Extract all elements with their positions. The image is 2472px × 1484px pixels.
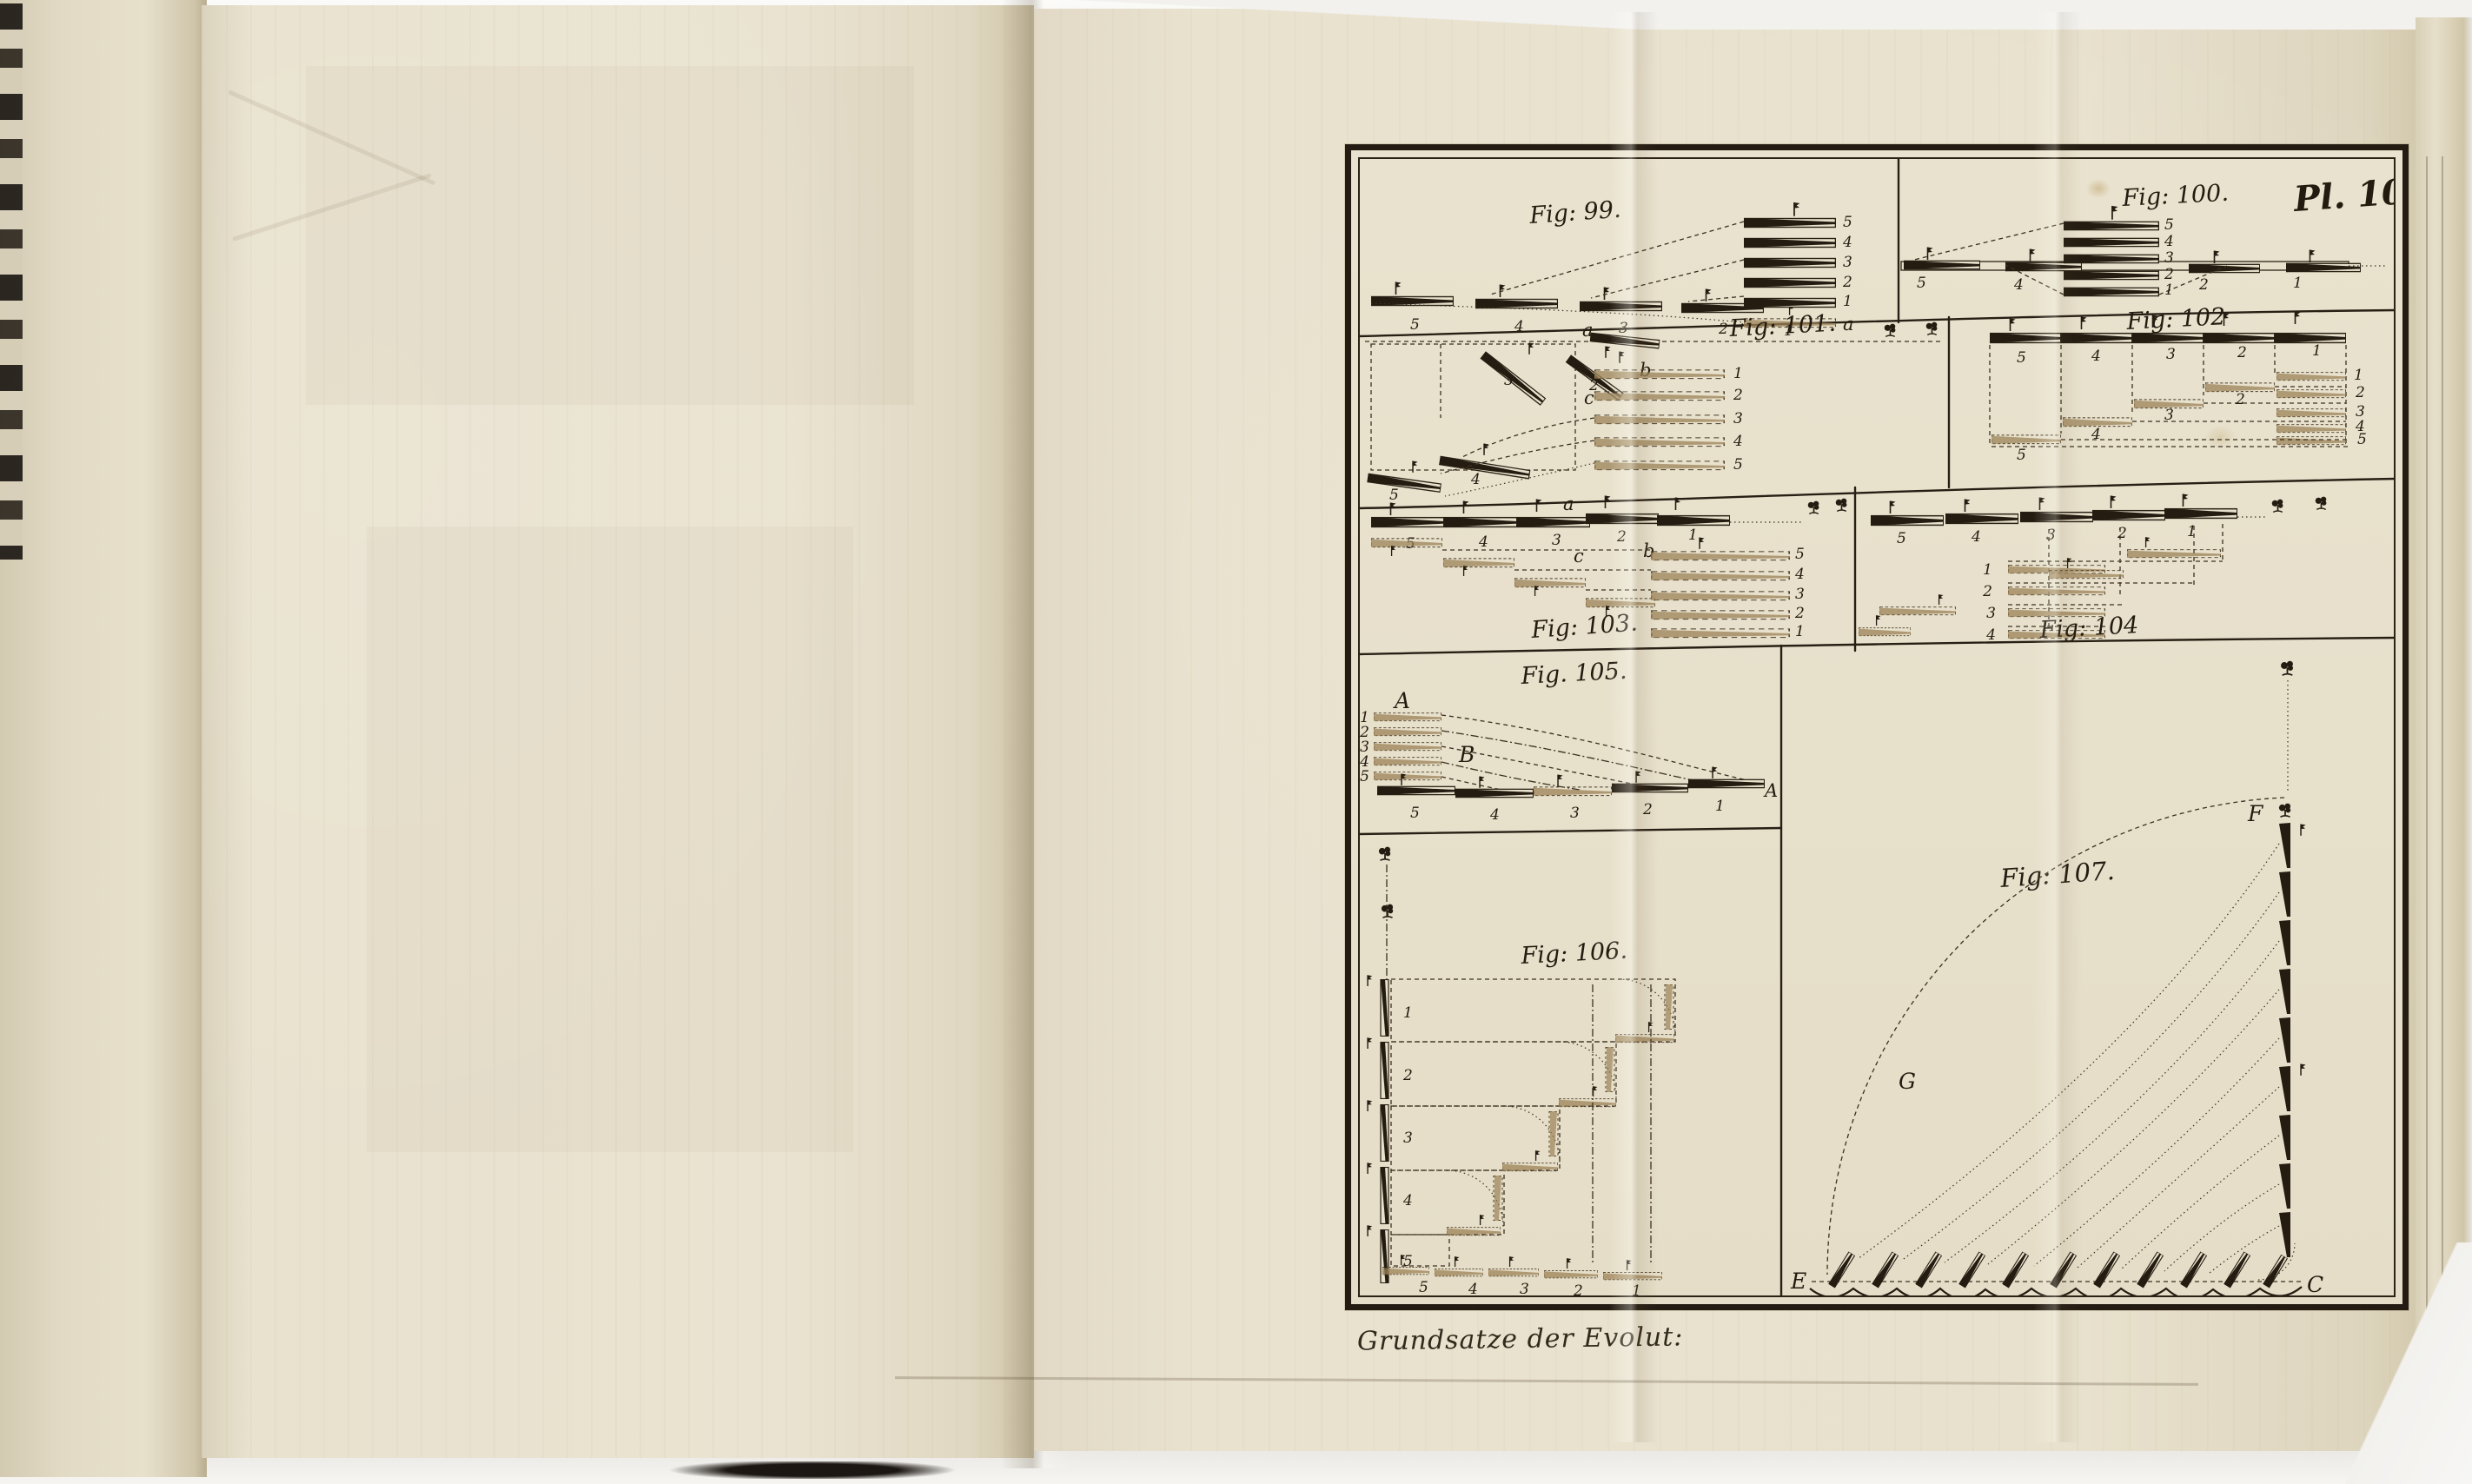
rank-number: 2 <box>2355 384 2365 401</box>
flag-icon <box>1558 775 1563 786</box>
battalion-bar-ghost <box>1651 552 1790 560</box>
page-edge-line <box>2426 156 2428 1355</box>
battalion-bar-ghost <box>1651 611 1790 619</box>
rank-number: 5 <box>2017 447 2026 464</box>
rank-number: 3 <box>1520 1281 1529 1297</box>
battalion-bar <box>1455 789 1534 798</box>
flag-icon <box>1464 501 1469 514</box>
tree-icon <box>2316 497 2327 510</box>
battalion-bar <box>1371 517 1444 527</box>
battalion-bar-vertical <box>1381 1229 1388 1283</box>
flag-icon <box>2301 825 2306 836</box>
flag-icon <box>1413 461 1418 473</box>
left-page-stack <box>0 0 207 1477</box>
battalion-bar-ghost <box>1651 572 1790 580</box>
battalion-bar <box>1371 296 1454 306</box>
flag-icon <box>1455 1256 1460 1267</box>
rank-number: 2 <box>1842 274 1852 291</box>
rank-number: 1 <box>1715 798 1725 815</box>
battalion-bar <box>1904 261 1980 269</box>
tree-icon <box>1836 499 1847 512</box>
flag-icon <box>2184 494 2189 507</box>
rank-number: 1 <box>2312 342 2322 360</box>
point-label-C: C <box>2307 1272 2323 1297</box>
battalion-bar-tilted <box>1872 1252 1899 1289</box>
wheel-outline <box>1391 1235 1449 1266</box>
battalion-bar <box>2275 333 2346 343</box>
battalion-bar-vertical <box>1381 1167 1388 1224</box>
battalion-bar <box>1444 517 1517 527</box>
battalion-bar <box>1744 298 1836 308</box>
flag-icon <box>1700 538 1705 549</box>
book-fore-edge <box>0 3 23 560</box>
point-label-A2: A <box>1763 780 1778 801</box>
rank-number: 3 <box>2164 407 2174 424</box>
battalion-bar-vertical <box>2279 1017 2290 1063</box>
rank-number: 4 <box>1733 433 1743 450</box>
rank-number: 4 <box>1470 471 1481 488</box>
table-surface-top <box>521 0 2472 30</box>
point-label-F: F <box>2247 801 2264 826</box>
flag-icon <box>1567 1258 1572 1269</box>
rank-number: 2 <box>2235 391 2245 408</box>
rank-number: 2 <box>1718 321 1728 338</box>
flag-icon <box>2111 496 2117 509</box>
battalion-bar-ghost <box>1651 592 1790 600</box>
rank-number: 5 <box>1419 1279 1428 1296</box>
rank-number: 4 <box>1794 566 1805 583</box>
rank-number: 5 <box>1410 316 1420 334</box>
photo-of-open-book: Fig: 99. 5 4 3 2 1 5 <box>0 0 2472 1484</box>
flag-icon <box>1594 1086 1598 1096</box>
fig99-label: Fig: 99. <box>1528 196 1621 229</box>
point-label-B: B <box>1458 742 1475 767</box>
battalion-bar-ghost <box>2276 437 2346 445</box>
battalion-bar-tilted <box>1367 474 1441 493</box>
flag-icon <box>1391 503 1396 516</box>
figure-100: Fig: 100. Pl. 10. 5 4 2 1 5 <box>1901 170 2396 299</box>
rank-number: 5 <box>1897 530 1906 547</box>
battalion-bar-ghost <box>2276 373 2346 381</box>
tree-icon <box>2279 804 2290 818</box>
wheel-outline <box>1391 1042 1616 1106</box>
flag-icon <box>1481 1215 1485 1225</box>
rank-number: 5 <box>1733 456 1743 474</box>
guide-line <box>1462 418 1594 457</box>
battalion-bar-vertical <box>2279 1066 2290 1111</box>
flag-icon <box>2112 206 2118 220</box>
fan-line <box>2121 1136 2279 1269</box>
rank-number: 2 <box>1573 1282 1583 1297</box>
rank-number: 3 <box>1733 410 1743 427</box>
flag-icon <box>1965 500 1971 513</box>
figure-105: Fig. 105. A 1 2 3 4 5 B <box>1359 658 1778 824</box>
rank-number: 5 <box>2017 349 2026 367</box>
battalion-bar-ghost <box>2127 550 2221 558</box>
tree-icon <box>1379 847 1390 861</box>
battalion-bar <box>2286 263 2361 272</box>
flag-icon <box>1368 975 1372 986</box>
battalion-bar-tilted <box>2180 1252 2207 1289</box>
battalion-bar-ghost <box>1488 1269 1539 1276</box>
fig100-label: Fig: 100. <box>2121 180 2230 212</box>
tree-icon <box>1885 324 1896 337</box>
flag-icon <box>2011 319 2016 332</box>
page-fold-crease <box>2033 12 2082 1442</box>
flag-icon <box>1928 248 1933 261</box>
rank-number: 5 <box>1360 768 1369 785</box>
flag-icon <box>1794 202 1800 216</box>
row-divider <box>1358 828 1781 834</box>
point-label-c: c <box>1584 388 1594 408</box>
battalion-bar-tilted <box>2002 1252 2029 1289</box>
battalion-bar-ghost <box>1549 1111 1558 1156</box>
tree-icon <box>1926 322 1938 335</box>
battalion-bar-ghost <box>1374 743 1441 751</box>
battalion-bar-ghost <box>1544 1271 1598 1278</box>
wheel-outline <box>1391 1106 1560 1170</box>
rank-number: 1 <box>1688 527 1698 544</box>
show-through-block <box>367 527 853 1152</box>
fan-line <box>2164 1184 2279 1271</box>
battalion-bar-ghost <box>1514 579 1586 587</box>
battalion-bar <box>1871 515 1944 526</box>
rank-number: 1 <box>2354 367 2363 384</box>
rank-number: 1 <box>1983 561 1992 579</box>
battalion-bar <box>1517 517 1590 527</box>
battalion-bar-vertical <box>1381 1104 1388 1162</box>
rank-number: 3 <box>1570 805 1580 822</box>
battalion-bar-ghost <box>2276 409 2346 417</box>
row-divider <box>1358 638 2396 654</box>
battalion-bar-vertical <box>2279 1212 2290 1257</box>
battalion-bar-vertical <box>1381 979 1388 1037</box>
guide-line <box>1688 296 1744 301</box>
tree-icon <box>2272 500 2283 513</box>
battalion-bar-tilted <box>1828 1252 1855 1289</box>
battalion-bar-ghost <box>2276 390 2346 398</box>
battalion-bar-vertical <box>2279 969 2290 1014</box>
battalion-bar <box>1945 513 2018 524</box>
flag-icon <box>2146 537 2151 547</box>
battalion-bar-ghost <box>1374 758 1441 765</box>
rank-number: 2 <box>2237 344 2247 361</box>
point-label-E: E <box>1790 1269 1806 1294</box>
rank-number: 3 <box>1843 254 1852 271</box>
battalion-bar <box>1744 218 1836 228</box>
blank-left-page <box>202 5 1034 1458</box>
battalion-bar-ghost <box>2276 425 2346 433</box>
battalion-bar-ghost <box>1374 713 1441 721</box>
fan-line <box>1988 990 2279 1264</box>
flag-icon <box>1537 500 1542 513</box>
rank-number: 5 <box>2357 431 2367 448</box>
battalion-bar <box>1744 278 1836 288</box>
rank-number: 4 <box>1514 318 1524 335</box>
point-label-a: a <box>1843 314 1854 335</box>
fan-line <box>2210 1226 2279 1273</box>
battalion-bar-vertical <box>2279 1163 2290 1209</box>
battalion-bar-tilted <box>2093 1252 2120 1289</box>
rank-number: 2 <box>2198 276 2209 294</box>
flag-icon <box>1891 501 1896 514</box>
battalion-bar <box>1377 786 1455 795</box>
page-edge-line <box>2442 156 2443 1355</box>
rank-number: 1 <box>1795 623 1805 640</box>
rank-number: 5 <box>1389 487 1399 504</box>
flag-icon <box>2082 317 2087 330</box>
rank-number: 4 <box>1402 1192 1413 1209</box>
battalion-bar <box>2132 333 2204 343</box>
flag-icon <box>2296 312 2301 325</box>
battalion-bar <box>2189 264 2260 273</box>
battalion-bar <box>1688 779 1765 788</box>
battalion-bar-tilted <box>1915 1252 1942 1289</box>
rank-number: 2 <box>2164 266 2174 283</box>
battalion-bar <box>1475 299 1558 308</box>
flag-icon <box>2301 1064 2306 1076</box>
battalion-bar-ghost <box>1665 984 1673 1030</box>
battalion-bar <box>1744 258 1836 268</box>
rank-number: 3 <box>1795 586 1805 603</box>
point-label-G: G <box>1899 1069 1916 1094</box>
engraved-plate: Fig: 99. 5 4 3 2 1 5 <box>1345 144 2409 1310</box>
battalion-bar <box>2204 333 2275 343</box>
flag-icon <box>1396 282 1402 295</box>
battalion-bar-ghost <box>1374 728 1441 736</box>
flag-icon <box>2310 250 2316 263</box>
rank-number: 4 <box>2013 276 2024 294</box>
show-through-stroke <box>228 89 436 185</box>
battalion-bar-ghost <box>1651 629 1790 638</box>
rank-number: 3 <box>2164 249 2174 267</box>
rank-number: 5 <box>1917 275 1926 292</box>
battalion-bar-tilted <box>2263 1255 2288 1289</box>
battalion-bar <box>2164 508 2237 519</box>
rank-number: 4 <box>1489 806 1500 824</box>
guide-line <box>1441 715 1751 781</box>
battalion-bar-ghost <box>1859 628 1911 636</box>
rank-number: 2 <box>1794 605 1805 622</box>
flag-icon <box>1368 1225 1372 1236</box>
fig101-label: Fig: 101. <box>1728 310 1837 342</box>
rank-number: 5 <box>2164 216 2174 234</box>
point-label-c: c <box>1574 546 1584 566</box>
table-surface-corner <box>2346 1242 2472 1484</box>
rank-number: 3 <box>1986 605 1996 622</box>
book-block-dark-edge <box>669 1461 956 1479</box>
fan-line <box>1945 941 2279 1262</box>
rank-number: 5 <box>1795 546 1805 563</box>
fig102-label: Fig: 102 <box>2125 303 2226 335</box>
flag-icon <box>1536 1150 1541 1161</box>
tree-icon <box>1808 501 1819 514</box>
flag-icon <box>1939 594 1944 605</box>
rank-number: 2 <box>1733 387 1743 404</box>
battalion-bar-vertical <box>2279 823 2290 868</box>
plate-number: Pl. 10. <box>2291 170 2396 220</box>
rank-number: 4 <box>1842 234 1852 251</box>
battalion-bar-vertical <box>1381 1042 1388 1099</box>
point-label-A: A <box>1393 688 1410 713</box>
battalion-bar-ghost <box>1374 772 1441 780</box>
battalion-bar-tilted <box>2137 1252 2164 1289</box>
show-through-stroke <box>232 173 432 242</box>
battalion-bar-ghost <box>1435 1269 1483 1276</box>
battalion-bar-vertical <box>2279 920 2290 965</box>
battalion-bar <box>1744 238 1836 248</box>
rank-number: 1 <box>1733 365 1743 382</box>
rank-number: 2 <box>1402 1067 1413 1084</box>
rank-number: 1 <box>2187 523 2197 540</box>
battalion-bar <box>1657 515 1730 526</box>
battalion-bar-tilted <box>2223 1252 2250 1289</box>
rank-number: 5 <box>1843 214 1852 231</box>
rank-number: 3 <box>1403 1130 1413 1147</box>
fan-line <box>2078 1087 2279 1268</box>
rank-number: 4 <box>1478 533 1488 551</box>
rank-number: 4 <box>1971 528 1981 546</box>
flag-icon <box>1510 1256 1514 1267</box>
battalion-bar <box>2092 510 2165 520</box>
flag-icon <box>1368 1163 1372 1174</box>
figure-104: 5 4 3 2 1 1 2 3 4 Fig: 104 <box>1859 494 2326 645</box>
flag-icon <box>1877 615 1881 626</box>
rank-number: 3 <box>1504 372 1514 389</box>
battalion-bar-vertical <box>2279 1115 2290 1160</box>
rank-number: 1 <box>2164 282 2174 299</box>
rank-number: 1 <box>1403 1004 1413 1022</box>
formation-outline <box>1371 344 1575 470</box>
plate-figures-svg: Fig: 99. 5 4 3 2 1 5 <box>1358 157 2396 1297</box>
show-through-block <box>306 66 914 405</box>
battalion-bar-ghost <box>1879 607 1956 615</box>
rank-number: 4 <box>2091 426 2101 443</box>
flag-icon <box>1529 343 1534 354</box>
tree-icon <box>2281 661 2293 675</box>
rank-number: 1 <box>2293 275 2303 292</box>
flag-icon <box>1368 1037 1372 1049</box>
battalion-bar-ghost <box>1443 559 1514 567</box>
rank-number: 4 <box>1985 626 1996 644</box>
battalion-bar-tilted <box>1439 456 1530 480</box>
rank-number: 3 <box>1552 532 1561 549</box>
rank-number: 2 <box>1982 583 1992 600</box>
row-divider <box>1358 479 2396 508</box>
flag-icon <box>1368 1100 1372 1111</box>
page-fold-crease <box>1609 12 1658 1442</box>
battalion-bar-tilted <box>1958 1252 1985 1289</box>
battalion-bar-ghost <box>1494 1176 1502 1221</box>
rank-number: 2 <box>2117 525 2127 542</box>
rank-number: 4 <box>2164 233 2174 250</box>
rank-number: 4 <box>1468 1281 1478 1297</box>
battalion-bar-vertical <box>2279 871 2290 917</box>
page-block-right-edge <box>2416 17 2472 1442</box>
rank-number: 4 <box>2091 348 2101 365</box>
point-label-a: a <box>1563 494 1574 514</box>
rank-number: 5 <box>1410 805 1420 822</box>
rank-number: 1 <box>1843 293 1852 310</box>
rank-number: 3 <box>2166 346 2176 363</box>
